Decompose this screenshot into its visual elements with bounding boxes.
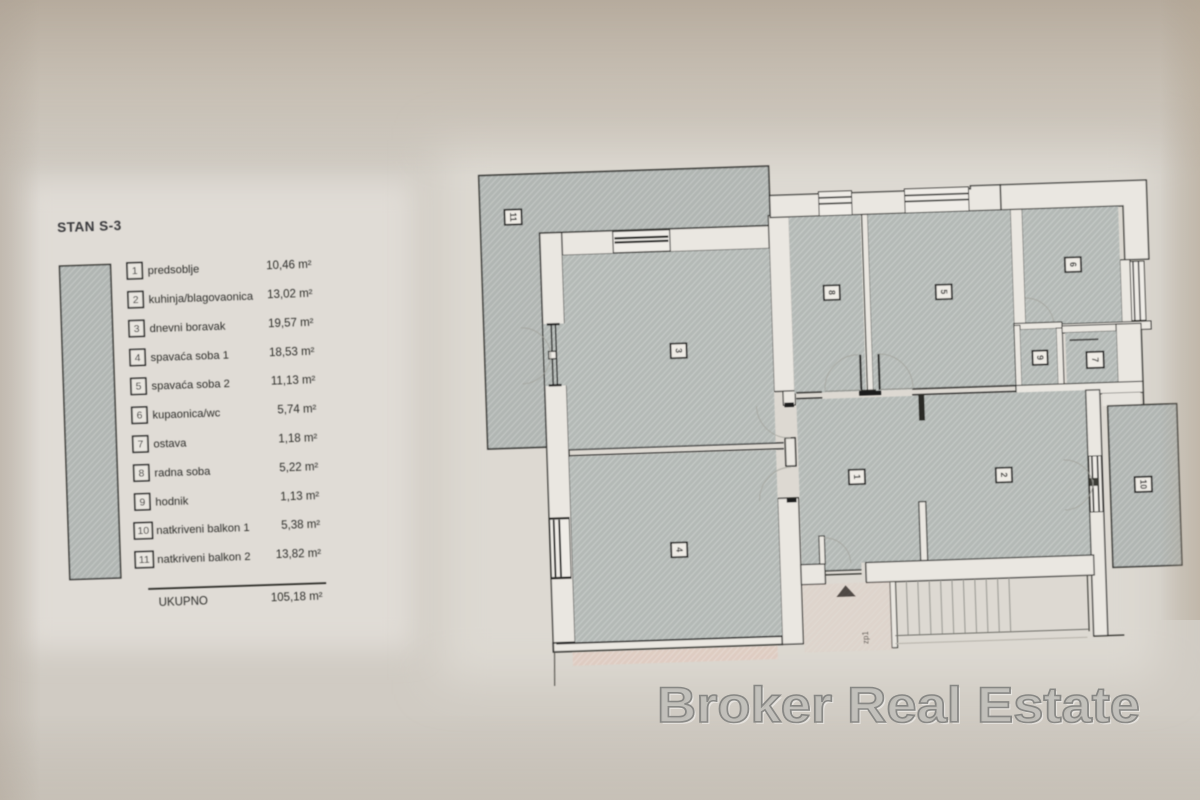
svg-text:4: 4 <box>674 547 684 552</box>
svg-text:1: 1 <box>852 474 862 479</box>
svg-text:3: 3 <box>133 323 139 335</box>
svg-text:1,18 m²: 1,18 m² <box>278 432 318 445</box>
svg-text:zp1: zp1 <box>861 630 870 644</box>
svg-text:10: 10 <box>137 525 149 537</box>
svg-text:STAN S-3: STAN S-3 <box>57 218 122 235</box>
svg-text:UKUPNO: UKUPNO <box>159 595 209 609</box>
svg-text:7: 7 <box>137 438 143 450</box>
svg-text:hodnik: hodnik <box>155 495 189 508</box>
svg-text:9: 9 <box>1035 355 1045 360</box>
svg-text:6: 6 <box>1068 262 1078 267</box>
svg-text:5,22 m²: 5,22 m² <box>279 461 319 474</box>
svg-text:10: 10 <box>1138 479 1148 489</box>
svg-text:8: 8 <box>138 467 144 479</box>
svg-text:8: 8 <box>827 290 837 295</box>
svg-text:kupaonica/wc: kupaonica/wc <box>152 407 221 421</box>
svg-text:ostava: ostava <box>153 437 187 450</box>
svg-text:18,53 m²: 18,53 m² <box>269 346 315 360</box>
svg-text:5: 5 <box>135 381 141 393</box>
svg-text:4: 4 <box>134 352 140 364</box>
svg-text:5: 5 <box>939 289 949 294</box>
svg-text:19,57 m²: 19,57 m² <box>268 317 314 331</box>
svg-text:3: 3 <box>674 348 684 353</box>
svg-text:13,02 m²: 13,02 m² <box>267 288 313 302</box>
svg-text:1,13 m²: 1,13 m² <box>280 490 320 503</box>
svg-text:11: 11 <box>139 554 150 566</box>
svg-text:9: 9 <box>139 496 145 508</box>
svg-text:2: 2 <box>999 472 1009 477</box>
svg-text:10,46 m²: 10,46 m² <box>266 259 312 273</box>
svg-text:5,74 m²: 5,74 m² <box>277 403 317 416</box>
svg-text:radna soba: radna soba <box>154 466 211 480</box>
svg-text:dnevni boravak: dnevni boravak <box>149 321 226 336</box>
svg-text:11,13 m²: 11,13 m² <box>271 374 316 387</box>
svg-text:5,38 m²: 5,38 m² <box>281 519 321 532</box>
svg-text:11: 11 <box>508 212 518 222</box>
svg-text:105,18 m²: 105,18 m² <box>271 591 323 605</box>
svg-text:1: 1 <box>132 265 138 277</box>
svg-text:6: 6 <box>136 410 142 422</box>
svg-text:2: 2 <box>133 294 139 306</box>
svg-text:7: 7 <box>1090 357 1100 362</box>
svg-text:predsoblje: predsoblje <box>148 264 200 278</box>
svg-text:13,82 m²: 13,82 m² <box>276 548 322 562</box>
